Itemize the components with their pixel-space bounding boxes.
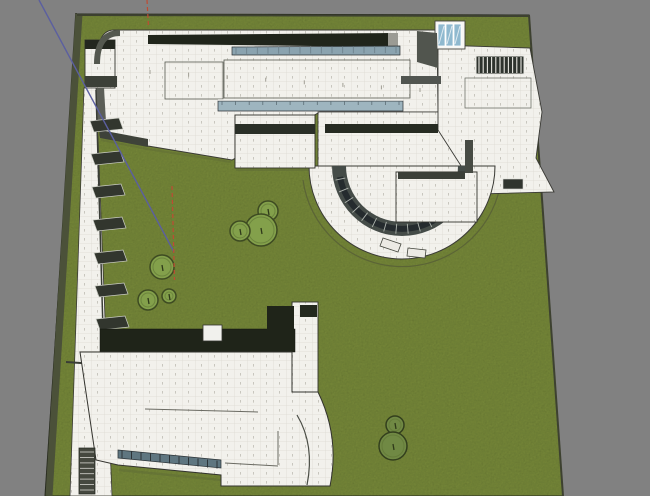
model-scene-canvas[interactable]: [0, 0, 650, 496]
west-stair-block: [79, 448, 95, 494]
rotunda-inner-block-roofband: [398, 172, 465, 179]
clerestory-glass-lower: [218, 101, 403, 111]
south-tower-cap: [300, 305, 317, 317]
mid-gallery-block: [235, 115, 315, 168]
gatehouse-base-band: [85, 76, 117, 87]
dark-wall-wedge: [417, 31, 438, 68]
east-wing-band: [401, 76, 441, 84]
rotunda-balcony-2: [407, 248, 426, 258]
site-edge-north: [77, 15, 529, 16]
south-building-roof-east: [267, 306, 294, 330]
mid-gallery-roofband: [235, 124, 315, 134]
south-dark-band-east: [325, 124, 438, 133]
rotunda-inner-block: [396, 172, 477, 222]
rotunda-wall-band: [465, 140, 473, 173]
south-roof-notch: [203, 325, 222, 341]
south-building-roof: [100, 329, 295, 352]
sketchup-viewport[interactable]: [0, 0, 650, 496]
east-wing-window-box: [503, 179, 523, 189]
